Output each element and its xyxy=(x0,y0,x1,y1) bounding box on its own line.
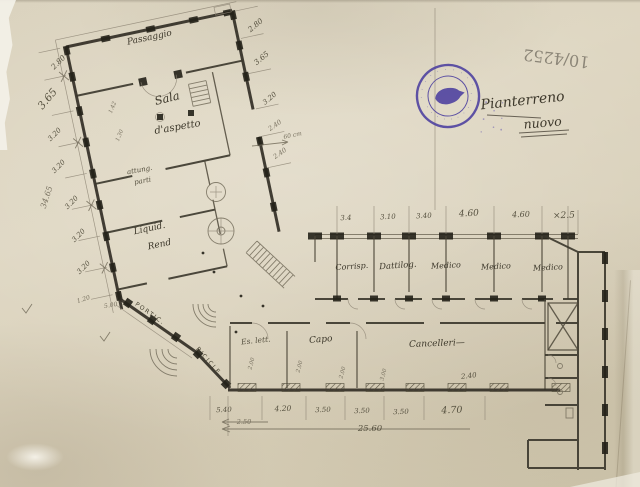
dim-bottom-offset: 2.50 xyxy=(236,418,251,426)
dim-top-5: ×2.5 xyxy=(553,211,575,222)
room-label-medico-3: Medico xyxy=(532,262,564,273)
room-label-aspetto: d'aspetto xyxy=(154,118,202,137)
right-wing xyxy=(228,233,578,392)
floor-plan-drawing: Passaggio Sala d'aspetto attung. parti L… xyxy=(0,0,640,487)
room-label-cancelleria: Cancelleri— xyxy=(409,338,465,350)
dim-top-4: 4.60 xyxy=(511,210,530,220)
dim-left-small-2: 5.00 xyxy=(104,301,119,310)
dim-inner-2: 3.20 xyxy=(261,90,279,106)
dim-top-3: 4.60 xyxy=(458,208,480,219)
room-label-capo: Capo xyxy=(309,334,334,346)
dim-bottom-4: 3.50 xyxy=(393,408,409,417)
inventory-number: 10/4252 xyxy=(522,45,590,72)
dim-bottom-total: 25.60 xyxy=(357,424,383,434)
room-label-liquid: Liquid. xyxy=(132,221,166,238)
room-label-rend: Rend xyxy=(146,238,172,253)
room-label-dattilog: Dattilog. xyxy=(378,260,417,273)
entry-fan-steps xyxy=(150,304,216,376)
room-label-attung: attung. xyxy=(126,164,153,176)
dim-inner-4: 60 cm xyxy=(283,130,303,141)
stamp-center-leaf-icon xyxy=(434,85,467,107)
plan-title-line1: Pianterreno xyxy=(479,89,566,114)
dim-left-small-1: 1.20 xyxy=(76,294,91,305)
sala-mark-0: 1.42 xyxy=(108,100,118,114)
room-label-sala: Sala xyxy=(153,88,181,108)
dim-left-2: 3.20 xyxy=(46,126,63,143)
room-label-medico-2: Medico xyxy=(480,261,512,272)
dim-inner-0: 2.80 xyxy=(245,16,265,34)
dim-left-0: 2.80 xyxy=(48,53,67,72)
room-label-parti: parti xyxy=(134,176,152,187)
room-mark-1: 2.00 xyxy=(295,360,304,375)
dim-left-5: 3.20 xyxy=(70,227,87,244)
dim-left-6: 3.20 xyxy=(75,259,92,276)
room-label-es-lett: Es. lett. xyxy=(240,335,271,347)
room-mark-0: 2.00 xyxy=(247,357,256,372)
room-mark-2: 2.00 xyxy=(338,366,347,381)
plan-title-line2: nuovo xyxy=(523,113,562,131)
dim-bottom-0: 5.40 xyxy=(216,406,232,415)
dim-left-3: 3.20 xyxy=(50,158,67,175)
room-mark-3: 3.00 xyxy=(380,368,389,382)
room-labels: Passaggio Sala d'aspetto attung. parti L… xyxy=(125,28,563,376)
dim-left-total: 34.65 xyxy=(39,185,55,210)
scanned-drawing-page: Passaggio Sala d'aspetto attung. parti L… xyxy=(0,0,640,487)
room-label-corrisp: Corrisp. xyxy=(335,261,368,272)
sala-mark-1: 1.30 xyxy=(115,128,125,142)
dim-bottom-2: 3.50 xyxy=(315,406,331,415)
dim-inner-5: 2.40 xyxy=(271,146,288,161)
dim-cancelleria: 2.40 xyxy=(460,371,478,381)
dim-bottom-3: 3.50 xyxy=(354,407,370,416)
title-block: Pianterreno nuovo xyxy=(479,89,569,137)
dim-inner-1: 3.65 xyxy=(252,49,271,67)
room-label-bicicle: BICICLE xyxy=(194,346,222,377)
dim-bottom-1: 4.20 xyxy=(273,404,291,414)
small-stair xyxy=(188,81,210,107)
room-label-medico-1: Medico xyxy=(430,260,462,271)
dim-inner-3: 2.40 xyxy=(266,118,283,133)
dim-left-1: 3.65 xyxy=(36,86,60,112)
main-stair xyxy=(246,241,295,288)
dim-top-2: 3.40 xyxy=(416,212,433,221)
dim-top-0: 3.4 xyxy=(340,214,352,223)
left-wing-piers xyxy=(62,8,289,301)
dim-bottom-5: 4.70 xyxy=(440,405,463,417)
dim-top-1: 3.10 xyxy=(380,213,397,222)
